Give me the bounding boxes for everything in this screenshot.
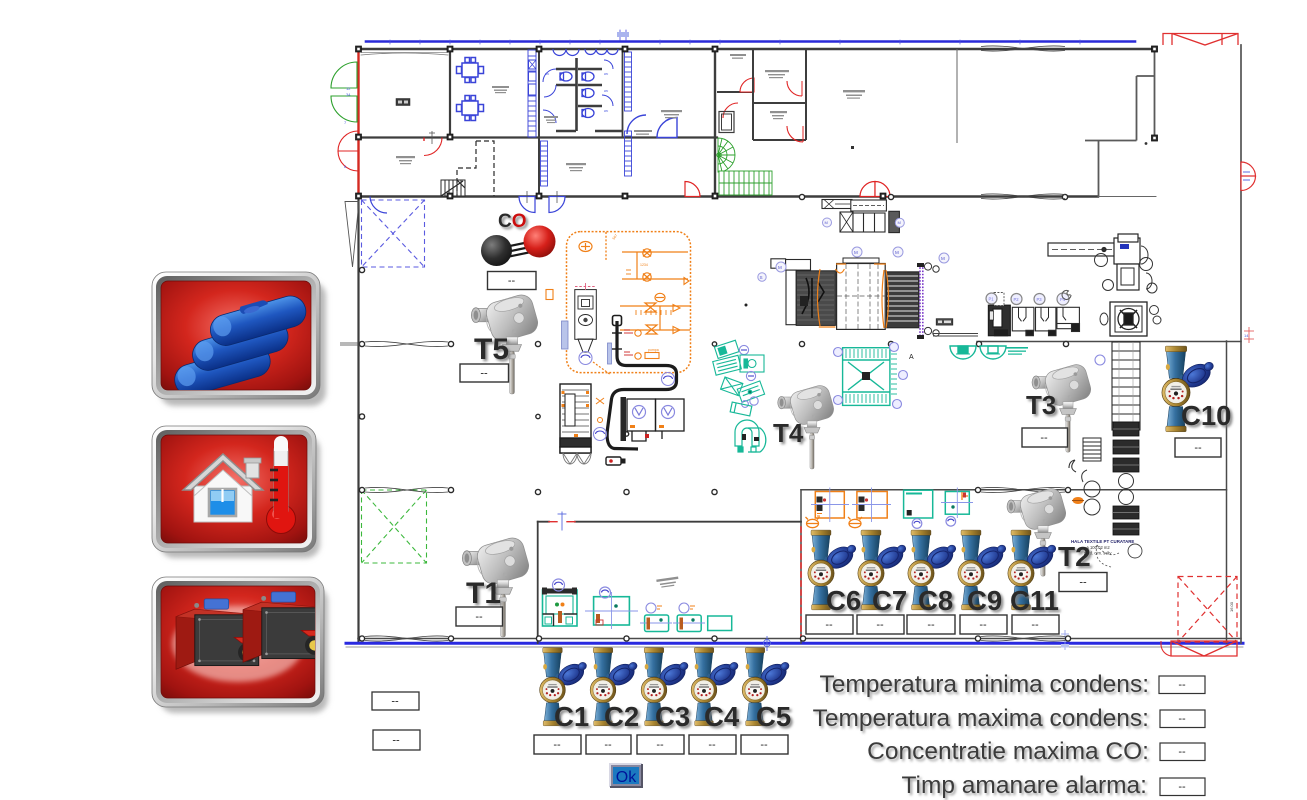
- svg-text:--: --: [1031, 619, 1039, 631]
- svg-text:--: --: [604, 739, 612, 751]
- svg-text:C11: C11: [1010, 585, 1059, 616]
- svg-text:C10: C10: [1181, 400, 1231, 431]
- svg-text:C9: C9: [967, 585, 1002, 616]
- svg-text:--: --: [979, 619, 987, 631]
- svg-text:P3: P3: [1037, 297, 1043, 302]
- svg-text:wc: wc: [545, 72, 549, 76]
- svg-text:Timp amanare alarma:: Timp amanare alarma:: [901, 772, 1147, 799]
- svg-text:--: --: [480, 368, 488, 380]
- svg-text:--: --: [876, 619, 884, 631]
- svg-text:Temperatura maxima condens:: Temperatura maxima condens:: [813, 705, 1149, 732]
- svg-text:M: M: [941, 256, 945, 261]
- svg-text:Concentratie maxima CO:: Concentratie maxima CO:: [867, 738, 1149, 765]
- svg-text:14: 14: [1244, 333, 1249, 338]
- svg-text:T4: T4: [773, 418, 804, 448]
- svg-text:1234: 1234: [640, 263, 648, 267]
- svg-text:T3: T3: [1026, 390, 1056, 420]
- svg-text:M: M: [895, 250, 899, 255]
- svg-text:C1: C1: [554, 701, 589, 732]
- svg-text:C4: C4: [704, 701, 740, 732]
- svg-text:--: --: [760, 739, 768, 751]
- svg-text:Ok: Ok: [616, 769, 637, 786]
- svg-text:C7: C7: [872, 585, 907, 616]
- svg-text:C8: C8: [918, 585, 953, 616]
- svg-text:--: --: [553, 739, 561, 751]
- svg-text:--: --: [1194, 442, 1202, 454]
- svg-text:T2: T2: [1058, 541, 1091, 572]
- svg-text:Temperatura minima condens:: Temperatura minima condens:: [819, 671, 1149, 698]
- svg-text:--: --: [656, 739, 664, 751]
- svg-text:P1: P1: [989, 297, 995, 302]
- svg-text:--: --: [1040, 432, 1048, 444]
- svg-text:34: 34: [346, 92, 351, 97]
- svg-text:--: --: [708, 739, 716, 751]
- svg-text:T1: T1: [466, 577, 501, 610]
- svg-text:16.00: 16.00: [1229, 601, 1234, 612]
- svg-text:--: --: [825, 619, 833, 631]
- svg-text:M: M: [778, 265, 782, 270]
- svg-text:--: --: [1178, 713, 1186, 725]
- svg-text:--: --: [1178, 746, 1186, 758]
- svg-text:--: --: [391, 696, 399, 708]
- svg-text:S: S: [760, 275, 763, 280]
- svg-text:--: --: [1178, 679, 1186, 691]
- svg-text:12: 12: [346, 86, 351, 91]
- svg-text:--: --: [1178, 781, 1186, 793]
- svg-text:--: --: [927, 619, 935, 631]
- svg-text:wc: wc: [604, 72, 608, 76]
- svg-text:C6: C6: [826, 585, 861, 616]
- svg-text:CO: CO: [498, 211, 527, 232]
- svg-text:M: M: [898, 220, 901, 225]
- svg-text:--: --: [475, 611, 483, 623]
- svg-text:wc: wc: [604, 89, 608, 93]
- svg-text:C5: C5: [756, 701, 791, 732]
- svg-text:--: --: [1079, 577, 1087, 589]
- svg-text:--: --: [392, 735, 400, 747]
- svg-text:P2: P2: [1014, 297, 1020, 302]
- svg-text:pompa: pompa: [648, 348, 659, 352]
- svg-text:C2: C2: [604, 701, 639, 732]
- svg-text:A: A: [909, 354, 914, 361]
- svg-text:wc: wc: [604, 109, 608, 113]
- svg-text:T5: T5: [474, 333, 509, 366]
- svg-text:M: M: [854, 250, 858, 255]
- svg-text:M: M: [825, 220, 828, 225]
- svg-text:C3: C3: [655, 701, 690, 732]
- svg-text:--: --: [508, 275, 516, 287]
